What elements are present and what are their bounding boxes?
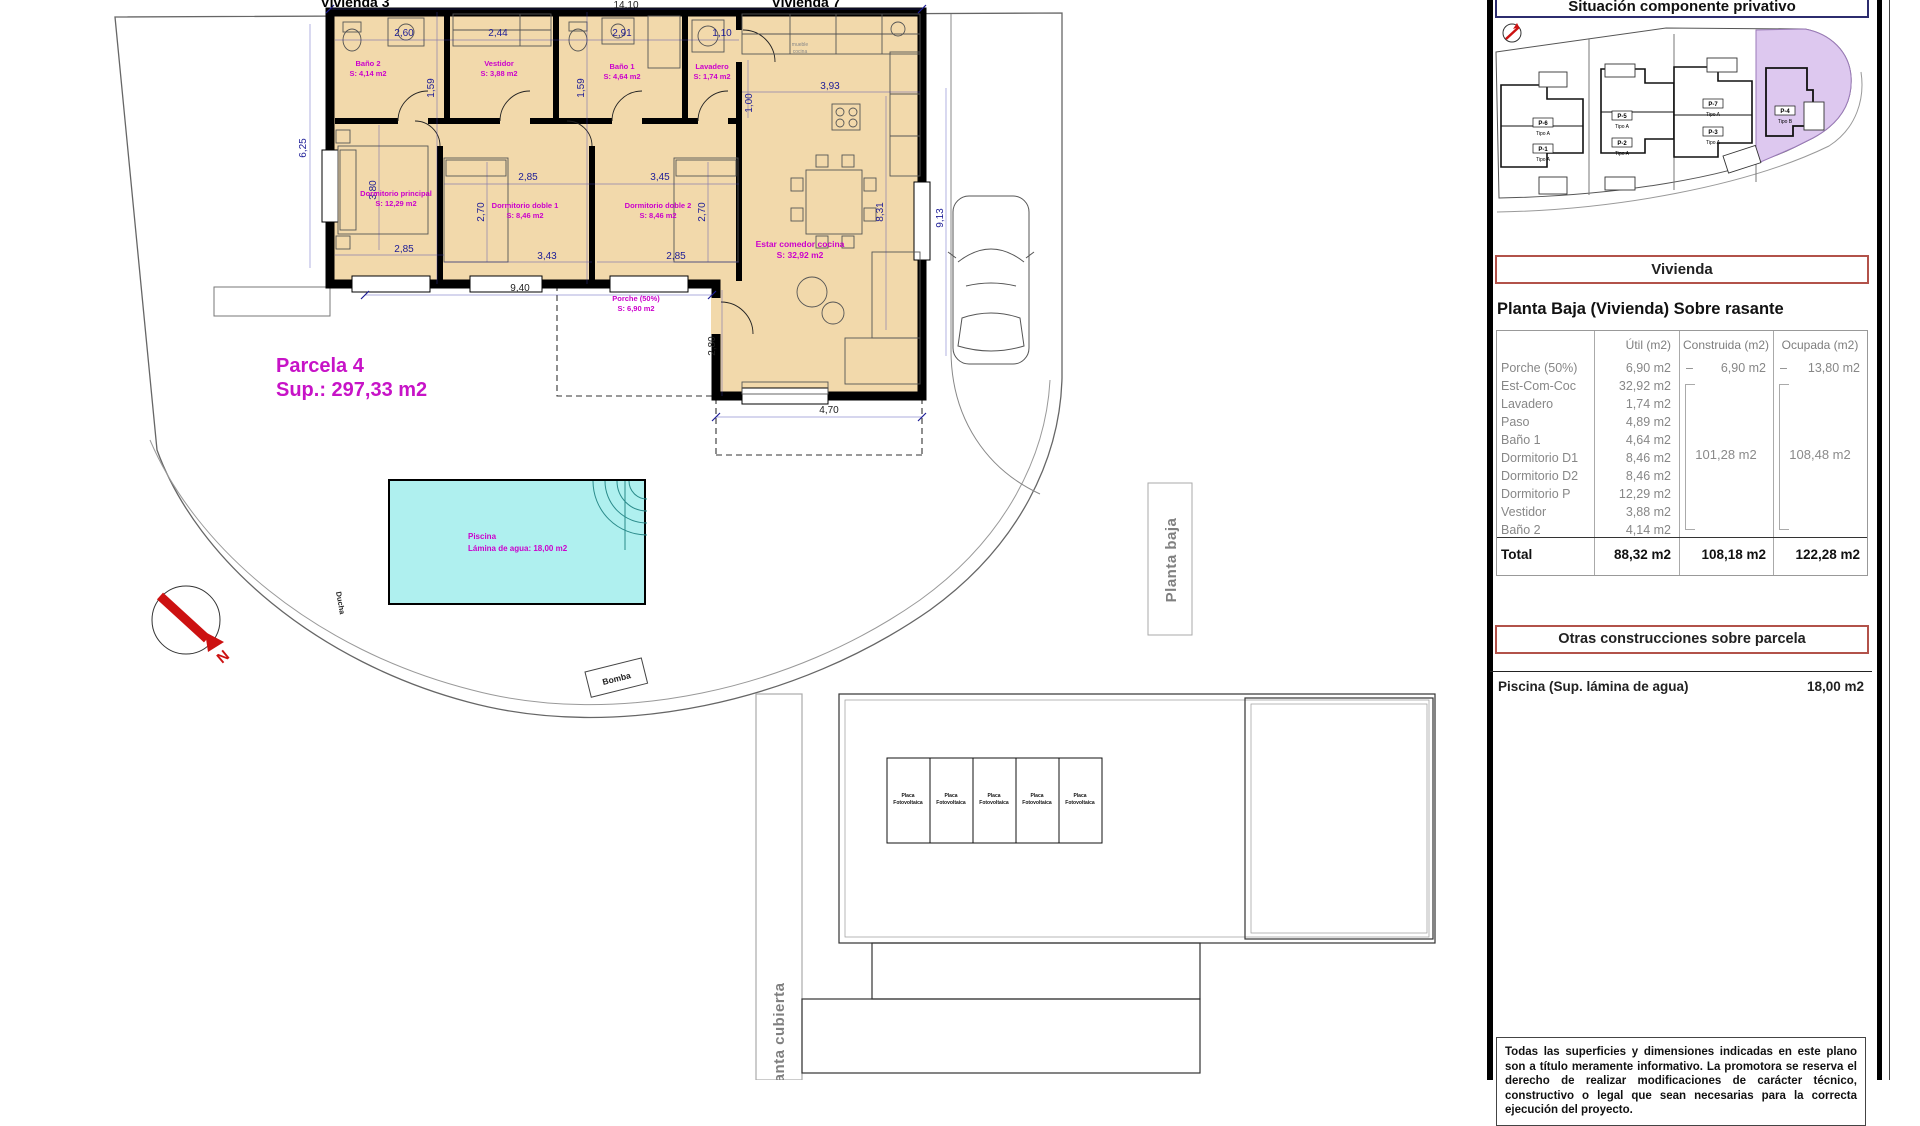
sheet-frame-outer — [1889, 0, 1890, 1080]
row-util: 32,92 m2 — [1594, 377, 1679, 395]
dim-label: 1,10 — [712, 28, 732, 39]
vivienda-7-label: Vivienda 7 — [771, 0, 840, 10]
row-util: 8,46 m2 — [1594, 467, 1679, 485]
row-ocupada: 13,80 m2 — [1808, 359, 1860, 377]
ocupada-group-value: 108,48 m2 — [1773, 447, 1867, 462]
room-area: S: 8,46 m2 — [639, 211, 676, 220]
dim-label: 14.10 — [613, 0, 638, 11]
piscina-row: Piscina (Sup. lámina de agua) 18,00 m2 — [1498, 679, 1864, 694]
row-label: Lavadero — [1497, 395, 1594, 413]
dim-label: 1,59 — [426, 78, 437, 98]
parcela-title: Parcela 4 — [276, 355, 365, 377]
room-label-vestidor: VestidorS: 3,88 m2 — [480, 59, 517, 78]
solar-panel-label: Fotovoltaica — [1065, 800, 1095, 806]
room-name: Dormitorio doble 2 — [625, 201, 692, 210]
dim-label: 2,91 — [612, 28, 632, 39]
north-compass-icon: N — [152, 586, 233, 667]
dim-label: 2,44 — [488, 28, 508, 39]
otras-header: Otras construcciones sobre parcela — [1495, 625, 1869, 654]
dim-label: 6,25 — [298, 138, 309, 158]
row-util: 3,88 m2 — [1594, 503, 1679, 521]
row-util: 1,74 m2 — [1594, 395, 1679, 413]
roof-plan — [756, 694, 1435, 1080]
total-ocupada: 122,28 m2 — [1773, 547, 1867, 562]
row-label: Est-Com-Coc — [1497, 377, 1594, 395]
parcel-tipo: Tipo A — [1706, 112, 1721, 118]
solar-panel-label: Placa — [901, 793, 914, 799]
row-label: Dormitorio P — [1497, 485, 1594, 503]
ducha-label: Ducha — [334, 591, 347, 616]
dim-label: 1,59 — [576, 78, 587, 98]
total-util: 88,32 m2 — [1594, 547, 1679, 562]
solar-panel-label: Fotovoltaica — [979, 800, 1009, 806]
row-util: 4,89 m2 — [1594, 413, 1679, 431]
vivienda-title: Vivienda — [1651, 261, 1712, 278]
col-header-ocupada: Ocupada (m2) — [1773, 331, 1867, 359]
vivienda-3-label: Vivienda 3 — [320, 0, 389, 10]
solar-panel-label: Placa — [1030, 793, 1043, 799]
dim-label: 2,85 — [518, 172, 538, 183]
solar-panel-label: Fotovoltaica — [893, 800, 923, 806]
room-name: Vestidor — [484, 59, 514, 68]
dim-label: 2,60 — [394, 28, 414, 39]
room-label-lavadero: LavaderoS: 1,74 m2 — [693, 62, 730, 81]
site-location-map: P-6Tipo A P-1Tipo A P-5Tipo A P-2Tipo A … — [1495, 14, 1867, 230]
parcel-code: P-6 — [1538, 121, 1548, 127]
parcel-code: P-2 — [1617, 141, 1627, 147]
room-name: Estar comedor cocina — [756, 239, 845, 249]
surfaces-table: Útil (m2) Construida (m2) Ocupada (m2) P… — [1496, 330, 1868, 576]
highlighted-parcel-4 — [1756, 29, 1851, 164]
pool: Piscina Lámina de agua: 18,00 m2 — [389, 480, 647, 604]
site-mini-compass-icon — [1503, 23, 1521, 42]
row-util: 6,90 m2 — [1594, 359, 1679, 377]
dash: – — [1686, 359, 1693, 377]
room-name: Dormitorio doble 1 — [492, 201, 559, 210]
solar-panel-label: Placa — [944, 793, 957, 799]
solar-panel-label: Placa — [1073, 793, 1086, 799]
table-row: Dormitorio P12,29 m2 — [1497, 485, 1867, 503]
dim-label: 4,70 — [819, 405, 839, 416]
section-divider — [1490, 671, 1872, 672]
parcela-label: Parcela 4 Sup.: 297,33 m2 — [276, 355, 427, 401]
dim-label: 1,00 — [744, 93, 755, 113]
table-row: Est-Com-Coc32,92 m2 — [1497, 377, 1867, 395]
disclaimer-note: Todas las superficies y dimensiones indi… — [1496, 1037, 1866, 1126]
room-name: Dormitorio principal — [360, 189, 432, 198]
terrace-step — [214, 287, 330, 316]
row-label: Baño 1 — [1497, 431, 1594, 449]
parcela-sup: Sup.: 297,33 m2 — [276, 379, 427, 401]
parcel-tipo: Tipo A — [1536, 157, 1551, 163]
dim-label: 9,13 — [935, 208, 946, 228]
parcel-code: P-7 — [1708, 102, 1718, 108]
car-icon — [948, 196, 1034, 364]
parcel-tipo: Tipo A — [1706, 140, 1721, 146]
parcel-code: P-4 — [1780, 109, 1790, 115]
dim-label: 2,85 — [666, 251, 686, 262]
planta-cubierta-label: Planta cubierta — [771, 982, 788, 1080]
parcel-code: P-1 — [1538, 147, 1548, 153]
room-area: S: 1,74 m2 — [693, 72, 730, 81]
table-header-row: Útil (m2) Construida (m2) Ocupada (m2) — [1497, 331, 1867, 359]
room-area: S: 8,46 m2 — [506, 211, 543, 220]
row-label: Dormitorio D1 — [1497, 449, 1594, 467]
bomba-box: Bomba — [585, 658, 648, 697]
dim-label: 2,80 — [707, 336, 718, 356]
dim-label: 8,31 — [875, 202, 886, 222]
parcel-code: P-5 — [1617, 114, 1627, 120]
pool-name: Piscina — [468, 532, 497, 541]
dim-label: 9,40 — [510, 283, 530, 294]
planta-baja-heading: Planta Baja (Vivienda) Sobre rasante — [1497, 300, 1784, 319]
room-area: S: 3,88 m2 — [480, 69, 517, 78]
situacion-title: Situación componente privativo — [1497, 0, 1867, 15]
piscina-label: Piscina (Sup. lámina de agua) — [1498, 679, 1689, 694]
table-row: Lavadero1,74 m2 — [1497, 395, 1867, 413]
row-util: 12,29 m2 — [1594, 485, 1679, 503]
col-header-util: Útil (m2) — [1594, 331, 1679, 359]
row-util: 4,64 m2 — [1594, 431, 1679, 449]
dim-label: 3,45 — [650, 172, 670, 183]
dash: – — [1780, 359, 1787, 377]
solar-panel-label: Placa — [987, 793, 1000, 799]
sheet-divider-line — [1487, 0, 1493, 1080]
north-letter: N — [214, 647, 233, 667]
row-label: Vestidor — [1497, 503, 1594, 521]
row-util: 8,46 m2 — [1594, 449, 1679, 467]
solar-panels: PlacaFotovoltaica PlacaFotovoltaica Plac… — [887, 758, 1102, 843]
table-row: Porche (50%) 6,90 m2 –6,90 m2 –13,80 m2 — [1497, 359, 1867, 377]
table-row: Dormitorio D28,46 m2 — [1497, 467, 1867, 485]
planta-baja-label: Planta baja — [1163, 517, 1180, 602]
parcel-tipo: Tipo A — [1615, 124, 1630, 130]
row-label: Dormitorio D2 — [1497, 467, 1594, 485]
room-name: Porche (50%) — [612, 294, 660, 303]
solar-panel-label: Fotovoltaica — [1022, 800, 1052, 806]
table-row: Paso4,89 m2 — [1497, 413, 1867, 431]
dim-label: 2,85 — [394, 244, 414, 255]
room-name: Baño 1 — [609, 62, 634, 71]
room-area: S: 4,14 m2 — [349, 69, 386, 78]
room-area: S: 32,92 m2 — [777, 250, 824, 260]
dim-label: 3,93 — [820, 81, 840, 92]
room-area: S: 6,90 m2 — [617, 304, 654, 313]
table-total-row: Total 88,32 m2 108,18 m2 122,28 m2 — [1497, 537, 1867, 571]
dim-label: 2,70 — [476, 202, 487, 222]
construida-group-value: 101,28 m2 — [1679, 447, 1773, 462]
kitchen-note-line: mueble — [792, 42, 809, 48]
room-name: Lavadero — [695, 62, 729, 71]
kitchen-note: mueble cocina — [792, 42, 809, 55]
dim-label: 3,43 — [537, 251, 557, 262]
row-label: Paso — [1497, 413, 1594, 431]
sheet-frame-right — [1877, 0, 1882, 1080]
planta-baja-strip: Planta baja — [1148, 483, 1192, 635]
total-label: Total — [1497, 547, 1594, 562]
title-block-panel: Situación componente privativo — [1496, 0, 1866, 1080]
dim-label: 2,70 — [697, 202, 708, 222]
solar-panel-label: Fotovoltaica — [936, 800, 966, 806]
row-label: Porche (50%) — [1497, 359, 1594, 377]
floor-plan-drawing: 14.10 2,60 2,44 2,91 1,10 1,59 1,59 6,25… — [0, 0, 1490, 1080]
room-name: Baño 2 — [355, 59, 380, 68]
parcel-tipo: Tipo A — [1536, 131, 1551, 137]
room-area: S: 12,29 m2 — [375, 199, 416, 208]
row-construida: 6,90 m2 — [1721, 359, 1766, 377]
piscina-value: 18,00 m2 — [1807, 679, 1864, 694]
parcel-tipo: Tipo B — [1778, 119, 1793, 125]
kitchen-note-line: cocina — [793, 49, 808, 55]
vivienda-header: Vivienda — [1495, 255, 1869, 284]
parcel-code: P-3 — [1708, 130, 1718, 136]
parcel-tipo: Tipo A — [1615, 151, 1630, 157]
col-header-construida: Construida (m2) — [1679, 331, 1773, 359]
pool-area: Lámina de agua: 18,00 m2 — [468, 544, 568, 553]
table-row: Vestidor3,88 m2 — [1497, 503, 1867, 521]
total-construida: 108,18 m2 — [1679, 547, 1773, 562]
room-label-porche: Porche (50%)S: 6,90 m2 — [612, 294, 660, 313]
room-area: S: 4,64 m2 — [603, 72, 640, 81]
otras-title: Otras construcciones sobre parcela — [1558, 631, 1805, 647]
